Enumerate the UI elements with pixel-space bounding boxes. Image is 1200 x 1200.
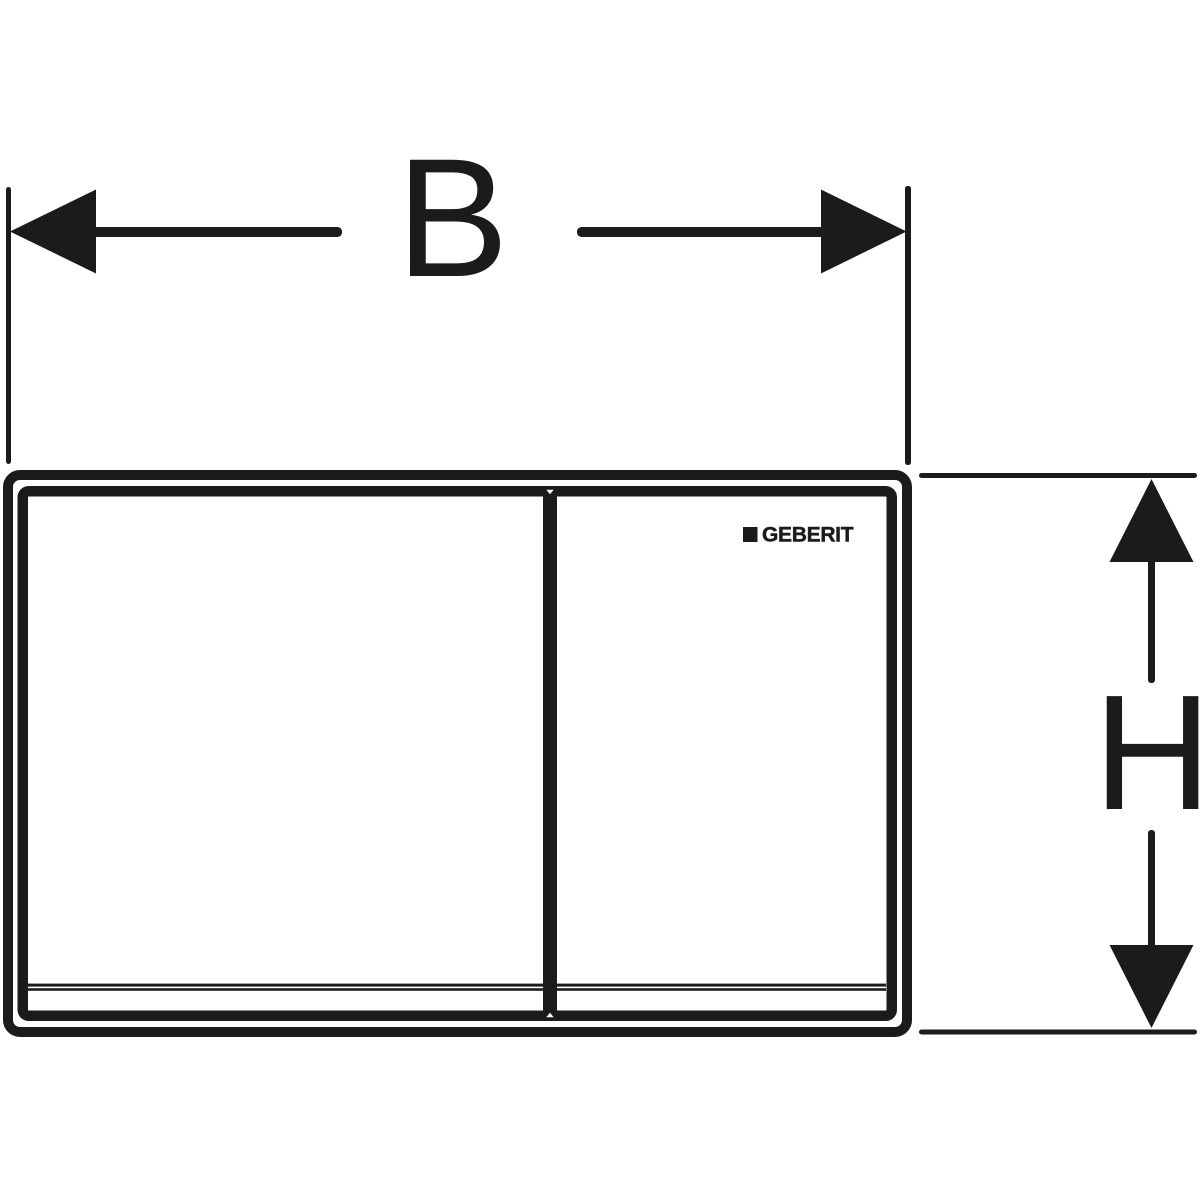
- svg-text:GEBERIT: GEBERIT: [762, 524, 854, 547]
- svg-text:B: B: [396, 123, 509, 312]
- svg-text:H: H: [1093, 661, 1200, 844]
